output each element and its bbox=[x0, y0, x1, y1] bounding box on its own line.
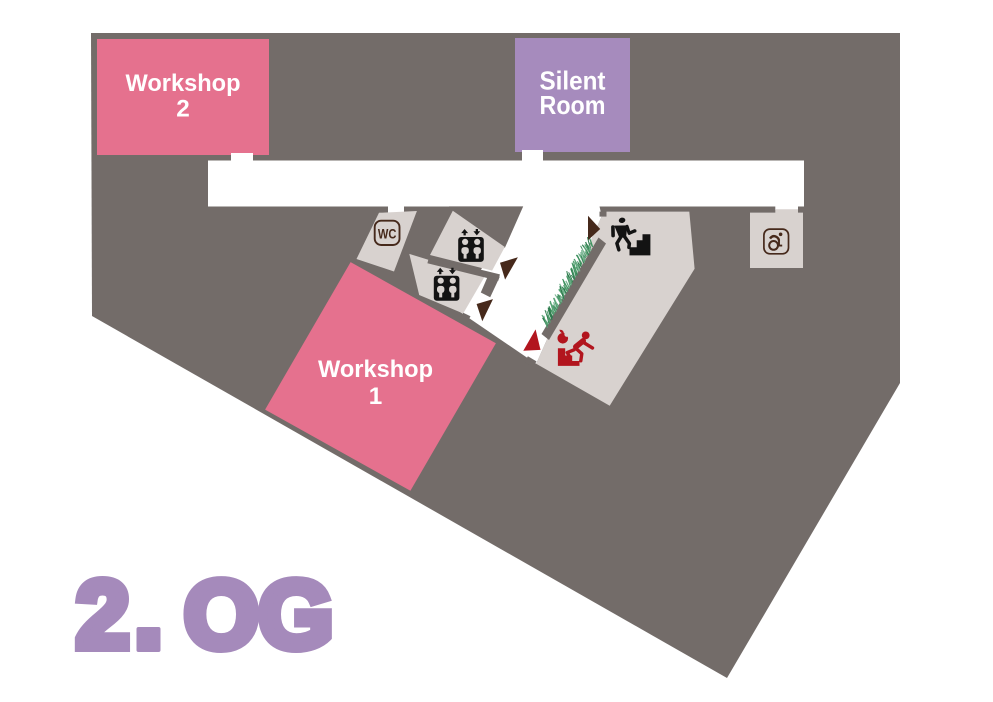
svg-text:Workshop: Workshop bbox=[318, 356, 433, 383]
svg-text:2: 2 bbox=[176, 96, 190, 123]
svg-text:2: 2 bbox=[76, 562, 129, 669]
svg-text:Room: Room bbox=[540, 90, 606, 120]
svg-text:Workshop: Workshop bbox=[126, 70, 241, 97]
svg-text:OG: OG bbox=[184, 562, 333, 669]
svg-text:WC: WC bbox=[378, 226, 397, 242]
svg-text:1: 1 bbox=[369, 383, 383, 410]
